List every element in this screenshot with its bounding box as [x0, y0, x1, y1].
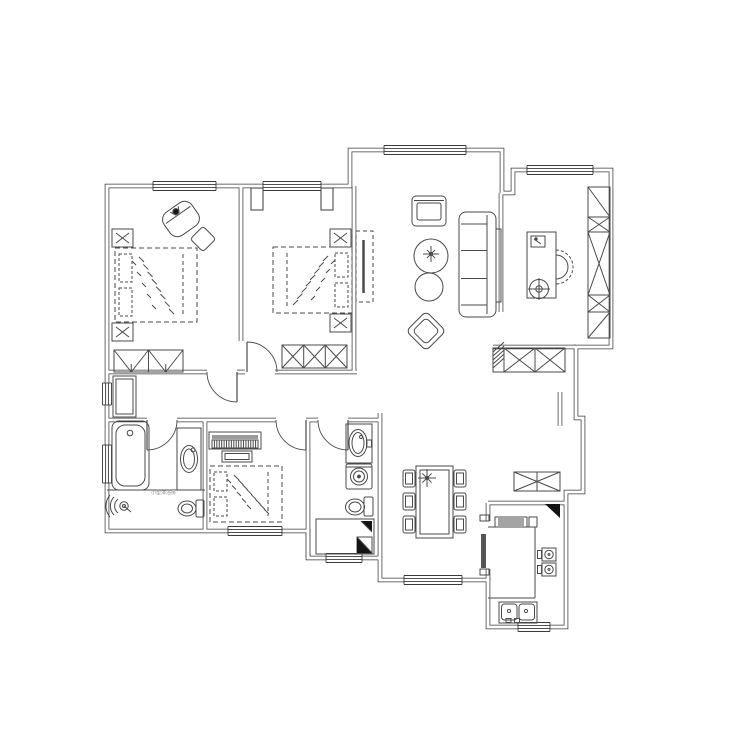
window-bedroom3-bottom — [228, 527, 282, 536]
bay-column-left — [251, 188, 263, 210]
window-bath1-left-a — [103, 383, 112, 405]
window-bath2-bottom — [326, 554, 362, 563]
bathroom-annotation: 小型淋浴房 — [151, 490, 176, 496]
window-kitchen-bottom — [518, 623, 550, 632]
window-study-top — [527, 166, 593, 175]
floor-plan-svg — [0, 0, 740, 740]
window-bedroom2-top — [263, 182, 321, 191]
floor-plan-canvas: 小型淋浴房 — [0, 0, 740, 740]
bay-column-right — [321, 188, 333, 210]
window-bedroom1-top — [153, 182, 216, 191]
window-living-top — [384, 146, 466, 155]
window-dining-bottom — [404, 576, 462, 585]
window-bath1-left-b — [103, 445, 112, 483]
